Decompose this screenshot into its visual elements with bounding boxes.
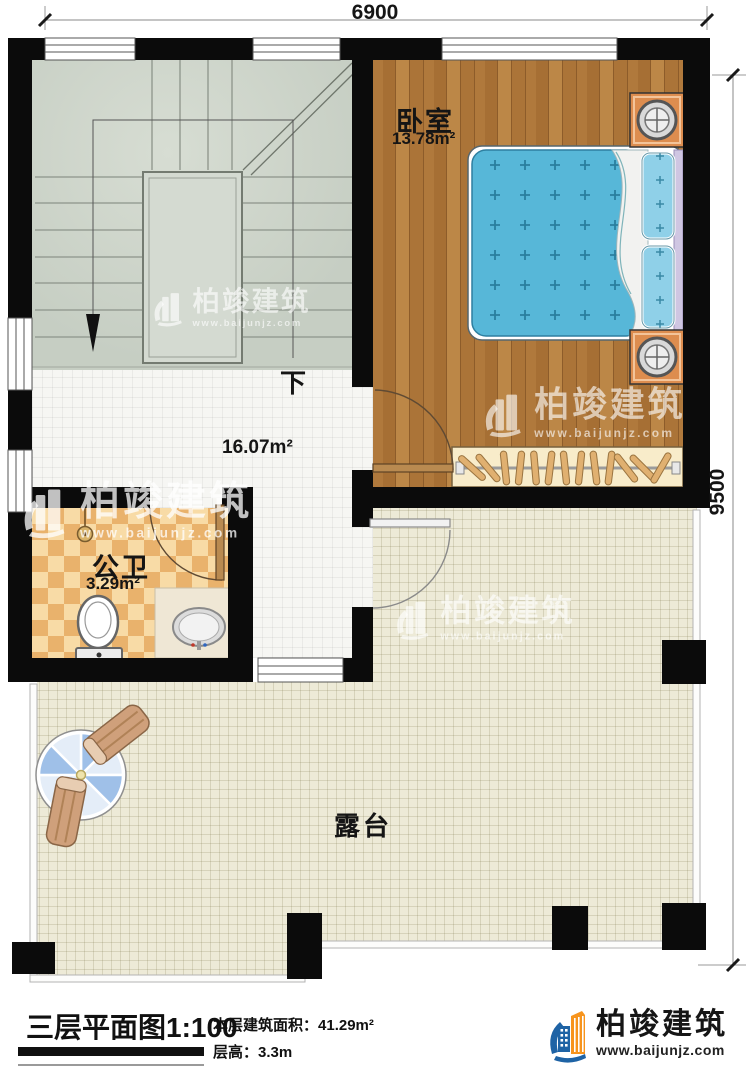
terrace-column (662, 903, 706, 950)
window (45, 38, 135, 60)
brand-url: www.baijunjz.com (596, 1042, 728, 1058)
nightstand-top (630, 93, 684, 147)
terrace-column (552, 906, 588, 950)
hall-area: 16.07m² (222, 437, 293, 459)
stair-void (143, 172, 242, 363)
terrace-door (370, 519, 450, 608)
dimension-top-label: 6900 (330, 1, 420, 25)
faucet (197, 641, 201, 650)
terrace-column (12, 942, 55, 974)
stair-down-arrow (86, 314, 100, 352)
toilet (76, 596, 122, 663)
plan-title-text: 三层平面图 (26, 1012, 166, 1043)
bathroom-area: 3.29m² (86, 574, 140, 594)
terrace-column (662, 640, 706, 684)
floor-area-info: 本层建筑面积：41.29m² (213, 1014, 374, 1035)
bedroom-area: 13.78m² (392, 129, 455, 149)
bedroom-door (373, 390, 453, 472)
dimension-right-label: 9500 (706, 447, 728, 537)
title-underline-bar (18, 1047, 204, 1056)
bed (468, 146, 683, 340)
plan-title: 三层平面图1:100 (26, 1006, 238, 1046)
plan-graphics (0, 0, 750, 1079)
wardrobe (452, 447, 683, 487)
staircase (32, 60, 373, 367)
window (8, 450, 32, 512)
floor-height-value: 3.3m (258, 1044, 292, 1061)
bathroom-lamp (78, 508, 93, 542)
nightstand-bottom (630, 330, 684, 384)
floor-height-info: 层高：3.3m (213, 1041, 292, 1062)
title-underline-thin (18, 1064, 204, 1066)
floor-area-label: 本层建筑面积： (213, 1017, 318, 1034)
window (253, 38, 340, 60)
brand-building-icon (544, 1008, 590, 1064)
floor-height-label: 层高： (213, 1044, 258, 1061)
terrace-column (287, 913, 322, 979)
window (8, 318, 32, 390)
floor-area-value: 41.29m² (318, 1017, 374, 1034)
floor-plan-page: 柏竣建筑 www.baijunjz.com 柏竣建筑 www.baijunjz.… (0, 0, 750, 1079)
brand-name: 柏竣建筑 (596, 1008, 728, 1041)
window (258, 658, 343, 682)
bathroom-door (150, 505, 224, 580)
terrace-label: 露台 (334, 806, 392, 843)
window (442, 38, 617, 60)
stairs-down-label: 下 (280, 363, 306, 400)
brand-logo: 柏竣建筑 www.baijunjz.com (544, 1008, 728, 1064)
